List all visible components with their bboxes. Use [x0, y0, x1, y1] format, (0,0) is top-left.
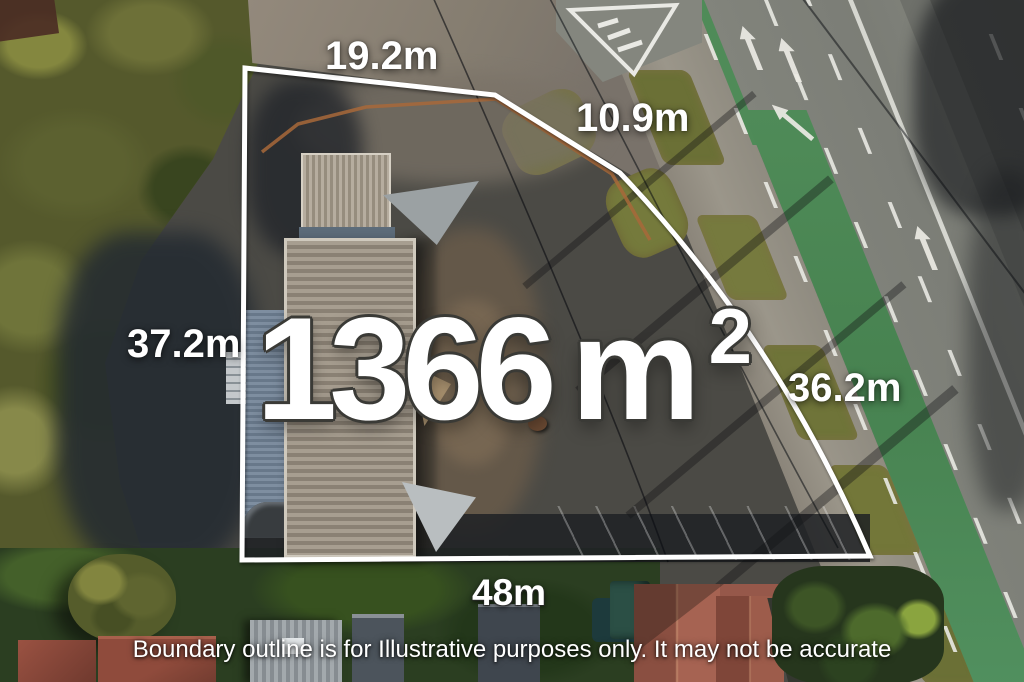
area-annotation: 1366m2 [256, 296, 752, 442]
measurement-label-upper-right: 10.9m [576, 98, 689, 138]
disclaimer-text: Boundary outline is for Illustrative pur… [0, 636, 1024, 664]
measurement-label-right: 36.2m [788, 368, 901, 408]
area-value: 1366 [256, 287, 549, 450]
aerial-property-photo: 19.2m 10.9m 37.2m 36.2m 48m 1366m2 Bound… [0, 0, 1024, 682]
measurement-label-left: 37.2m [127, 324, 240, 364]
measurement-label-top: 19.2m [325, 36, 438, 76]
area-superscript: 2 [709, 292, 752, 380]
measurement-label-bottom: 48m [472, 574, 546, 611]
area-unit: m [571, 287, 701, 450]
